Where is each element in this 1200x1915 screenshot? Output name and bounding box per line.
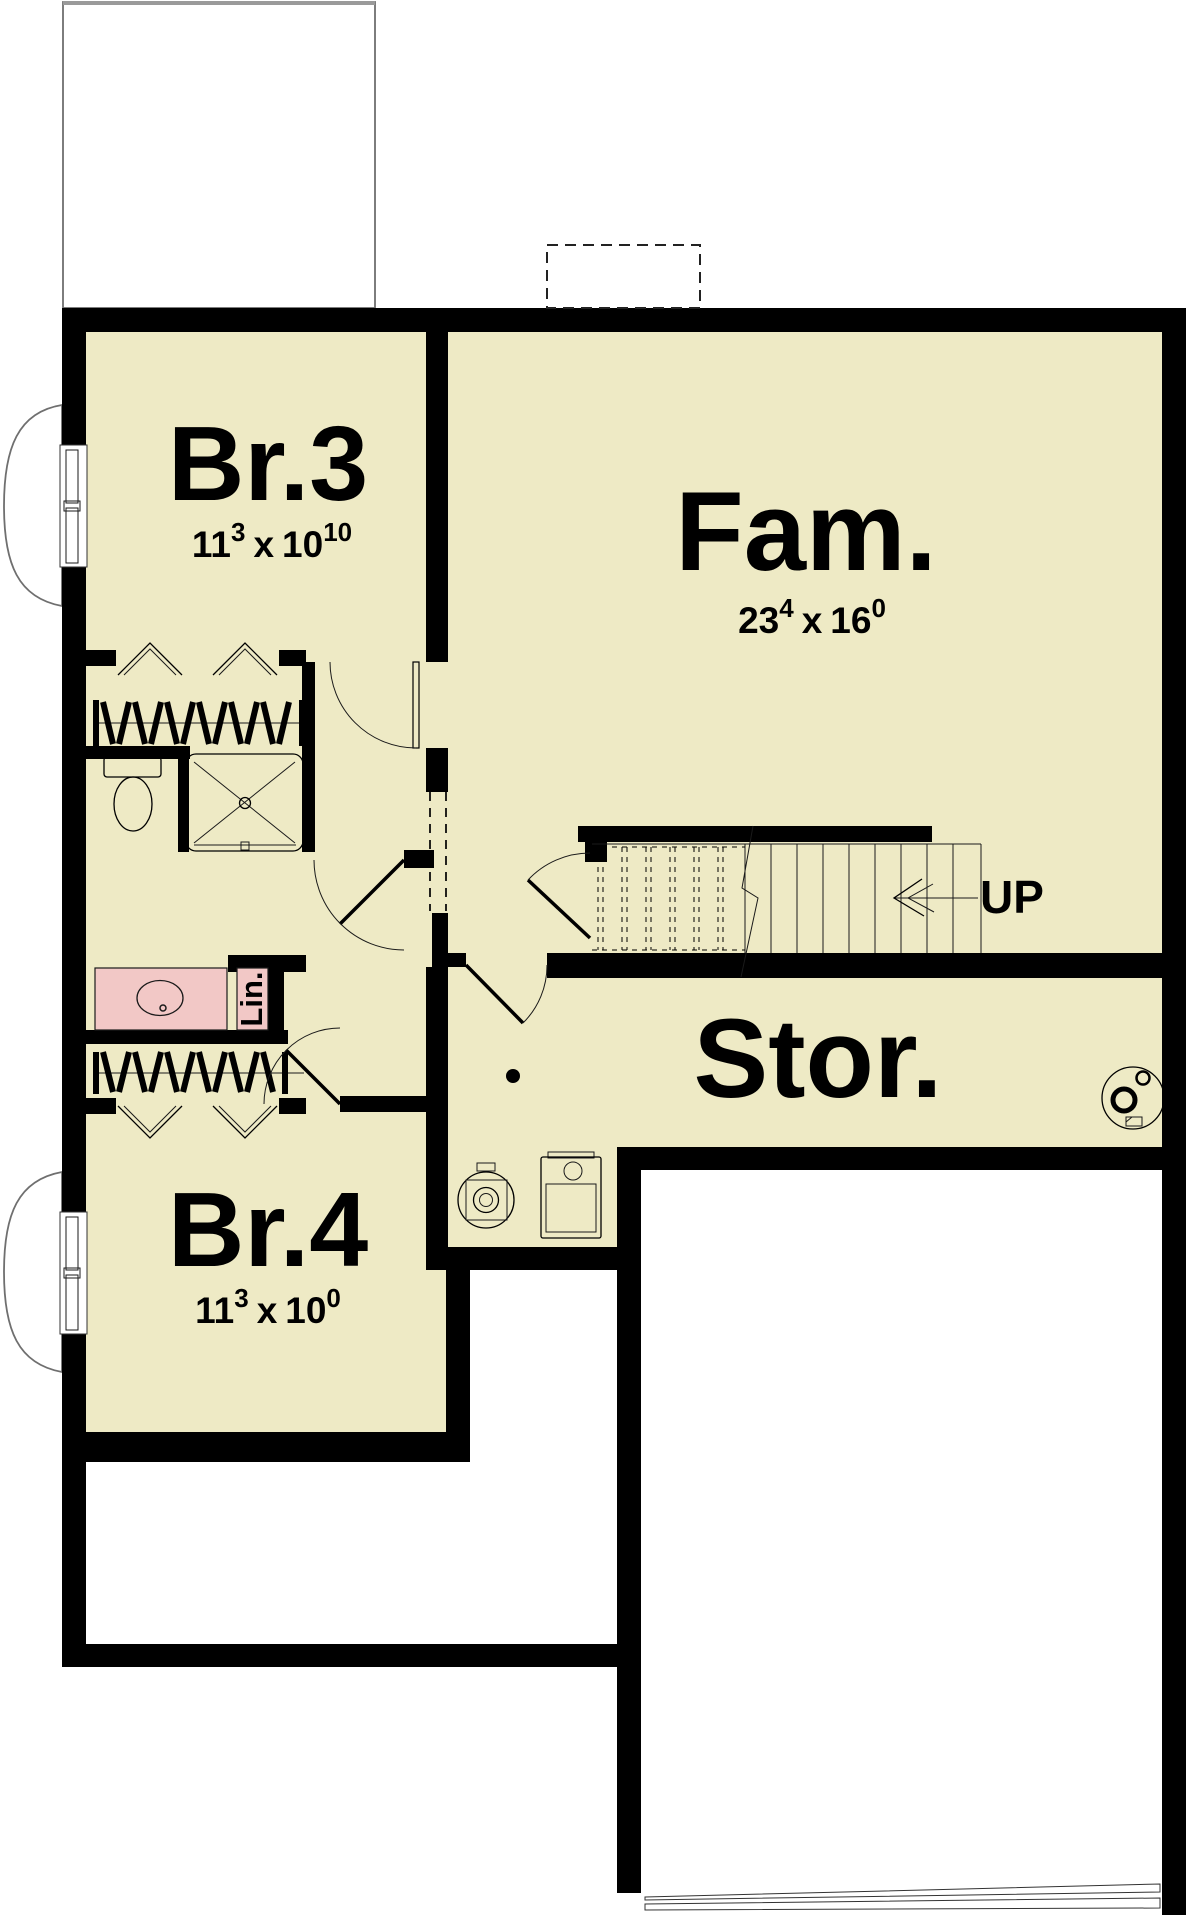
room-label-fam: Fam.: [675, 469, 936, 594]
room-label-stor: Stor.: [694, 996, 943, 1121]
window: [60, 445, 87, 567]
floor-plan-basement: Br.3 113x1010 Fam. 234x160 Stor. Br.4 11…: [0, 0, 1200, 1915]
window-well: [4, 405, 62, 1372]
floor-drain-dot: [506, 1069, 520, 1083]
garage-area: [641, 1170, 1162, 1890]
room-label-br4: Br.4: [168, 1171, 368, 1289]
stoop-outline: [547, 245, 700, 308]
porch-outline: [63, 2, 375, 308]
room-label-br3: Br.3: [168, 405, 368, 523]
vanity-sink: [95, 968, 227, 1030]
window: [60, 1212, 87, 1334]
room-dim-fam: 234x160: [738, 593, 886, 641]
floor-plan-drawing: Br.3 113x1010 Fam. 234x160 Stor. Br.4 11…: [0, 0, 1200, 1915]
stairs-up-label: UP: [980, 871, 1044, 923]
room-dim-br4: 113x100: [195, 1283, 341, 1331]
linen-closet-label: Lin.: [234, 971, 269, 1026]
